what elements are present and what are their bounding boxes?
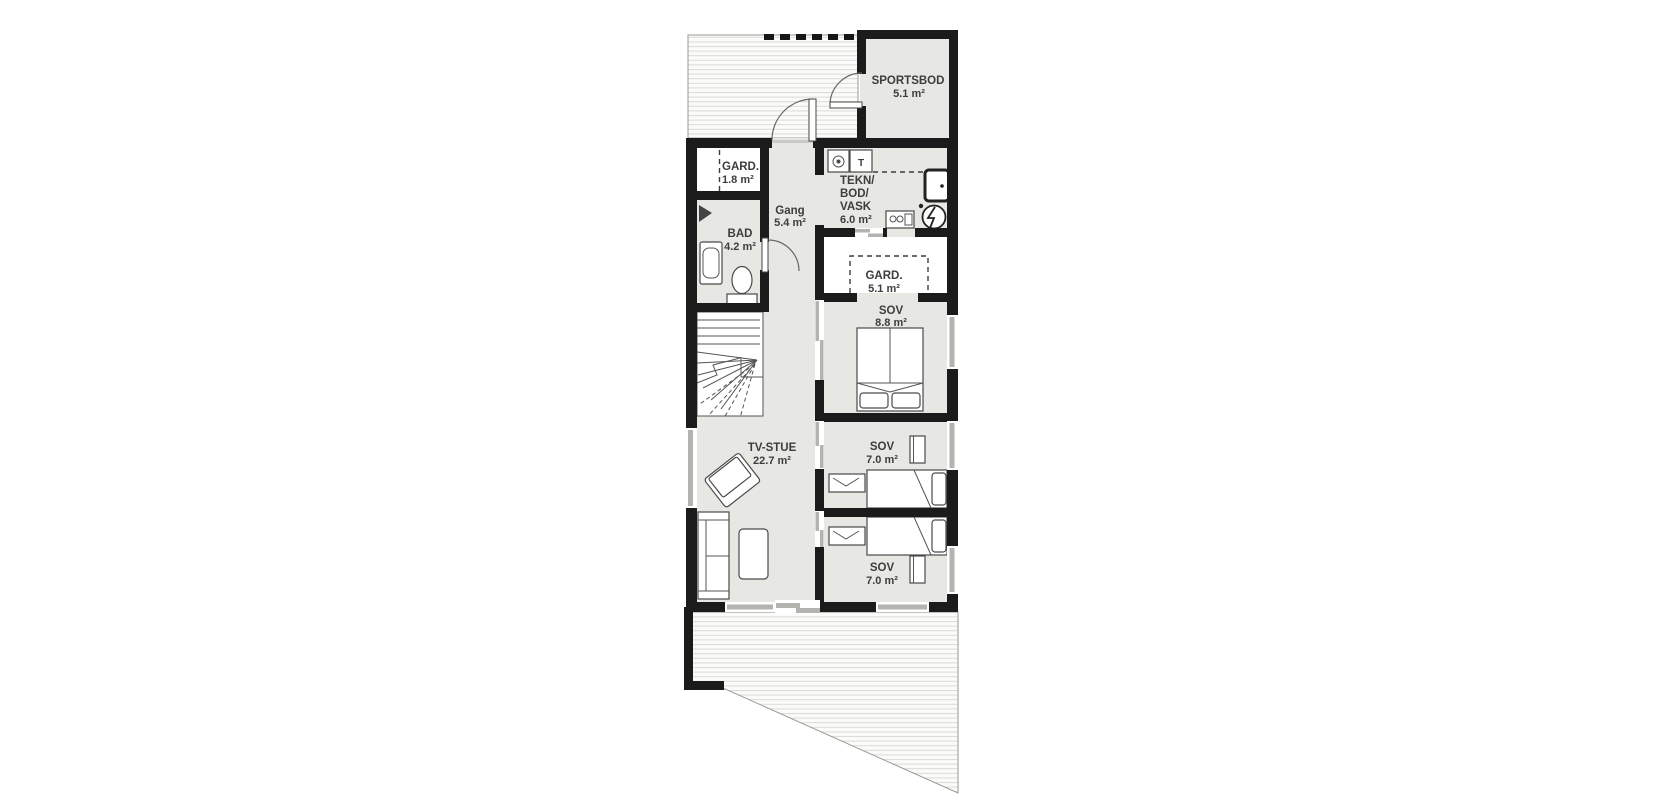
room-label-sportsbod: SPORTSBOD [872,75,945,87]
entrance-threshold [772,140,813,143]
floor-plan-page: T [0,0,1670,800]
window-tvstue-south [725,602,775,612]
window-sov-mid-east [947,421,958,470]
water-heater-icon [925,170,949,201]
room-label-tekn-3: VASK [840,201,872,213]
sliding-door-tekn-south [855,228,883,237]
room-label-tekn-2: BOD/ [840,188,870,200]
room-area-gard-master: 5.1 m² [868,283,900,295]
room-label-sov-master: SOV [879,305,904,317]
window-tvstue-west [685,428,697,508]
room-area-tekn: 6.0 m² [840,214,872,226]
double-bed [857,328,923,411]
sliding-door-sov-master [815,300,824,380]
window-sov-master-east [947,315,958,369]
window-sov-south-east [947,546,958,594]
room-label-gang: Gang [775,205,804,217]
room-area-sov-south: 7.0 m² [866,575,898,587]
laundry-sink-icon [886,211,914,228]
room-label-sov-mid: SOV [870,441,895,453]
shelf-south [910,556,925,583]
shelf-mid [910,436,925,463]
sliding-door-sov-south [815,511,824,547]
room-area-sportsbod: 5.1 m² [893,88,925,100]
dryer-icon: T [850,150,872,172]
floor-plan: T [0,0,1670,800]
deck-wall-corner [684,681,724,690]
single-bed-south [867,517,947,555]
room-label-gard-master: GARD. [865,270,902,282]
room-area-tvstue: 22.7 m² [753,455,791,467]
coffee-table [739,529,768,579]
dryer-label: T [858,158,864,169]
room-label-bad: BAD [728,228,753,240]
room-label-gard-entry: GARD. [722,161,759,173]
bottom-deck [684,607,958,793]
pillow [892,393,920,408]
deck-wall-left [684,607,693,690]
room-area-sov-master: 8.8 m² [875,317,907,329]
nightstand-south [829,527,865,545]
sliding-door-sov-mid [815,421,824,469]
room-area-sov-mid: 7.0 m² [866,454,898,466]
room-area-bad: 4.2 m² [724,241,756,253]
washing-machine-icon [828,150,849,172]
sofa [698,512,729,599]
nightstand-mid [829,474,865,492]
single-bed-mid [867,470,947,508]
pillow [860,393,888,408]
sliding-door-tvstue-deck [775,600,820,614]
room-label-sov-south: SOV [870,562,895,574]
room-area-gang: 5.4 m² [774,217,806,229]
top-deck [688,35,858,138]
room-label-tvstue: TV-STUE [748,442,797,454]
pillow [932,473,946,505]
pillow [932,520,946,552]
window-sov-south-south [876,602,929,612]
room-label-tekn-1: TEKN/ [840,175,875,187]
room-area-gard-entry: 1.8 m² [722,174,754,186]
sink-icon [700,242,722,284]
